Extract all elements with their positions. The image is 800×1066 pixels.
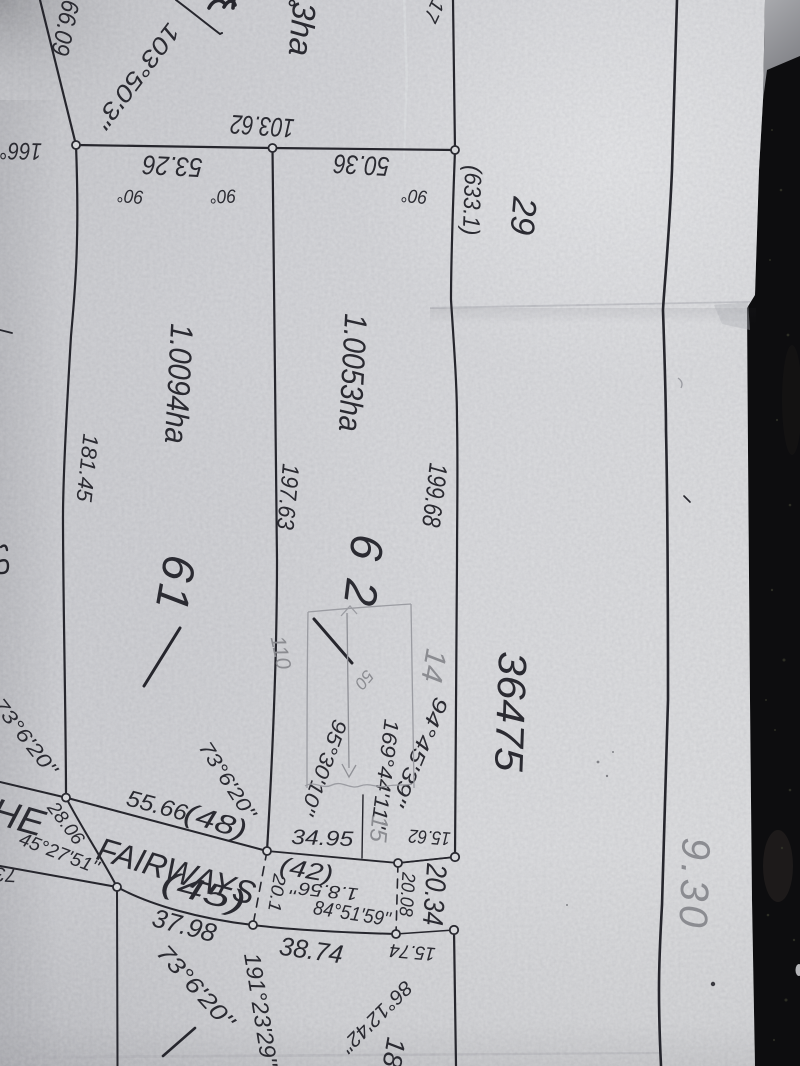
svg-text:1.0053ha: 1.0053ha [332,313,374,433]
svg-text:73: 73 [0,862,17,885]
svg-text:15: 15 [364,814,393,844]
svg-text:29: 29 [502,194,543,236]
svg-text:34.95: 34.95 [291,826,354,851]
svg-text:36475: 36475 [486,651,534,773]
svg-text:15.74: 15.74 [389,939,437,964]
svg-text:1.0094ha: 1.0094ha [158,323,200,445]
svg-text:166°: 166° [0,137,42,165]
svg-text:50.36: 50.36 [332,149,390,182]
svg-text:90°: 90° [400,184,428,207]
svg-text:15.62: 15.62 [408,825,452,849]
svg-text:9.30: 9.30 [670,837,717,932]
svg-text:62: 62 [332,532,395,629]
svg-text:20.34: 20.34 [416,862,452,927]
svg-text:3ha: 3ha [282,0,324,57]
svg-text:90°: 90° [209,185,236,207]
svg-text:197.63: 197.63 [271,463,304,532]
svg-text:53.26: 53.26 [141,149,203,182]
svg-text:18: 18 [376,1035,411,1066]
svg-text:90°: 90° [116,184,144,207]
svg-text:(633.1): (633.1) [457,165,486,236]
svg-text:61: 61 [145,551,206,618]
svg-text:103.62: 103.62 [229,109,295,143]
svg-text:14: 14 [414,646,452,685]
svg-text:20.08: 20.08 [394,871,418,918]
